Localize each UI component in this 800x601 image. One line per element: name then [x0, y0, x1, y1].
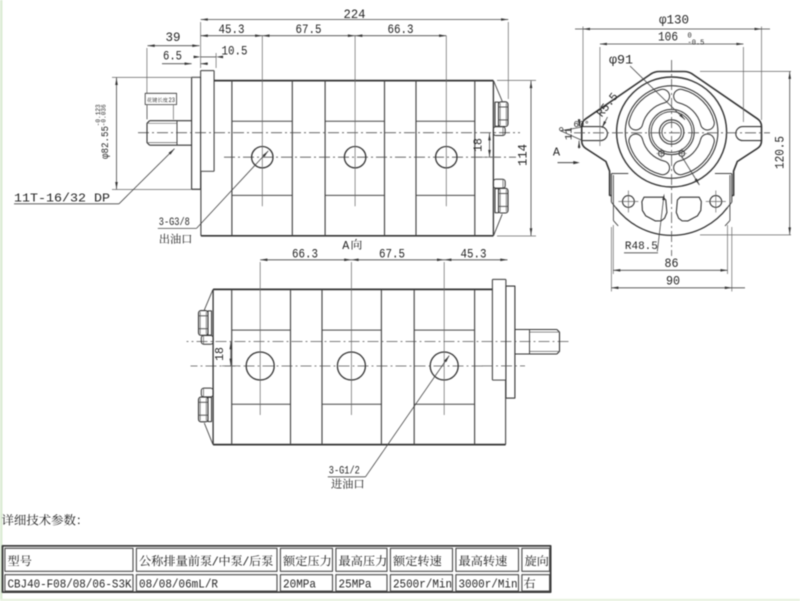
- svg-text:86: 86: [665, 257, 679, 271]
- svg-text:11T-16/32 DP: 11T-16/32 DP: [14, 192, 110, 206]
- svg-text:67.5: 67.5: [296, 23, 322, 37]
- svg-text:60°: 60°: [574, 119, 590, 130]
- svg-text:2500r/Min: 2500r/Min: [393, 577, 452, 591]
- svg-text:08/08/06mL/R: 08/08/06mL/R: [139, 577, 219, 591]
- svg-text:45.3: 45.3: [461, 247, 487, 261]
- svg-text:φ82.55: φ82.55: [100, 126, 112, 159]
- svg-text:/: /: [212, 555, 219, 569]
- svg-text:120.5: 120.5: [774, 136, 788, 169]
- svg-text:66.3: 66.3: [292, 247, 318, 261]
- svg-text:/: /: [242, 555, 249, 569]
- svg-text:20MPa: 20MPa: [283, 577, 316, 591]
- svg-text:25MPa: 25MPa: [339, 577, 372, 591]
- svg-text:A: A: [553, 146, 561, 160]
- svg-text:-0.123: -0.123: [95, 104, 102, 126]
- svg-text:18: 18: [473, 138, 486, 152]
- svg-text:φ91: φ91: [609, 54, 633, 68]
- svg-text:23: 23: [169, 97, 176, 104]
- svg-text:R48.5: R48.5: [625, 241, 658, 253]
- svg-text:3000r/Min: 3000r/Min: [459, 577, 518, 591]
- svg-text:3-G3/8: 3-G3/8: [159, 217, 190, 229]
- svg-text:114: 114: [517, 144, 531, 166]
- svg-text:CBJ40-F08/08/06-S3K: CBJ40-F08/08/06-S3K: [8, 577, 133, 591]
- svg-text:39: 39: [166, 31, 181, 45]
- svg-text:6.5: 6.5: [163, 50, 182, 64]
- svg-text:A: A: [342, 239, 350, 253]
- svg-text:106: 106: [658, 31, 678, 45]
- svg-text:-0.5: -0.5: [688, 40, 705, 48]
- svg-text:3-G1/2: 3-G1/2: [329, 465, 360, 477]
- svg-text:φ130: φ130: [659, 14, 689, 28]
- svg-text:67.5: 67.5: [379, 247, 405, 261]
- svg-text:45.3: 45.3: [219, 23, 245, 37]
- svg-text:10.5: 10.5: [222, 45, 248, 59]
- svg-text:18: 18: [214, 347, 227, 361]
- svg-text:224: 224: [344, 8, 366, 22]
- svg-text:66.3: 66.3: [388, 23, 414, 37]
- svg-text:90: 90: [666, 274, 680, 288]
- svg-text:11: 11: [564, 127, 576, 140]
